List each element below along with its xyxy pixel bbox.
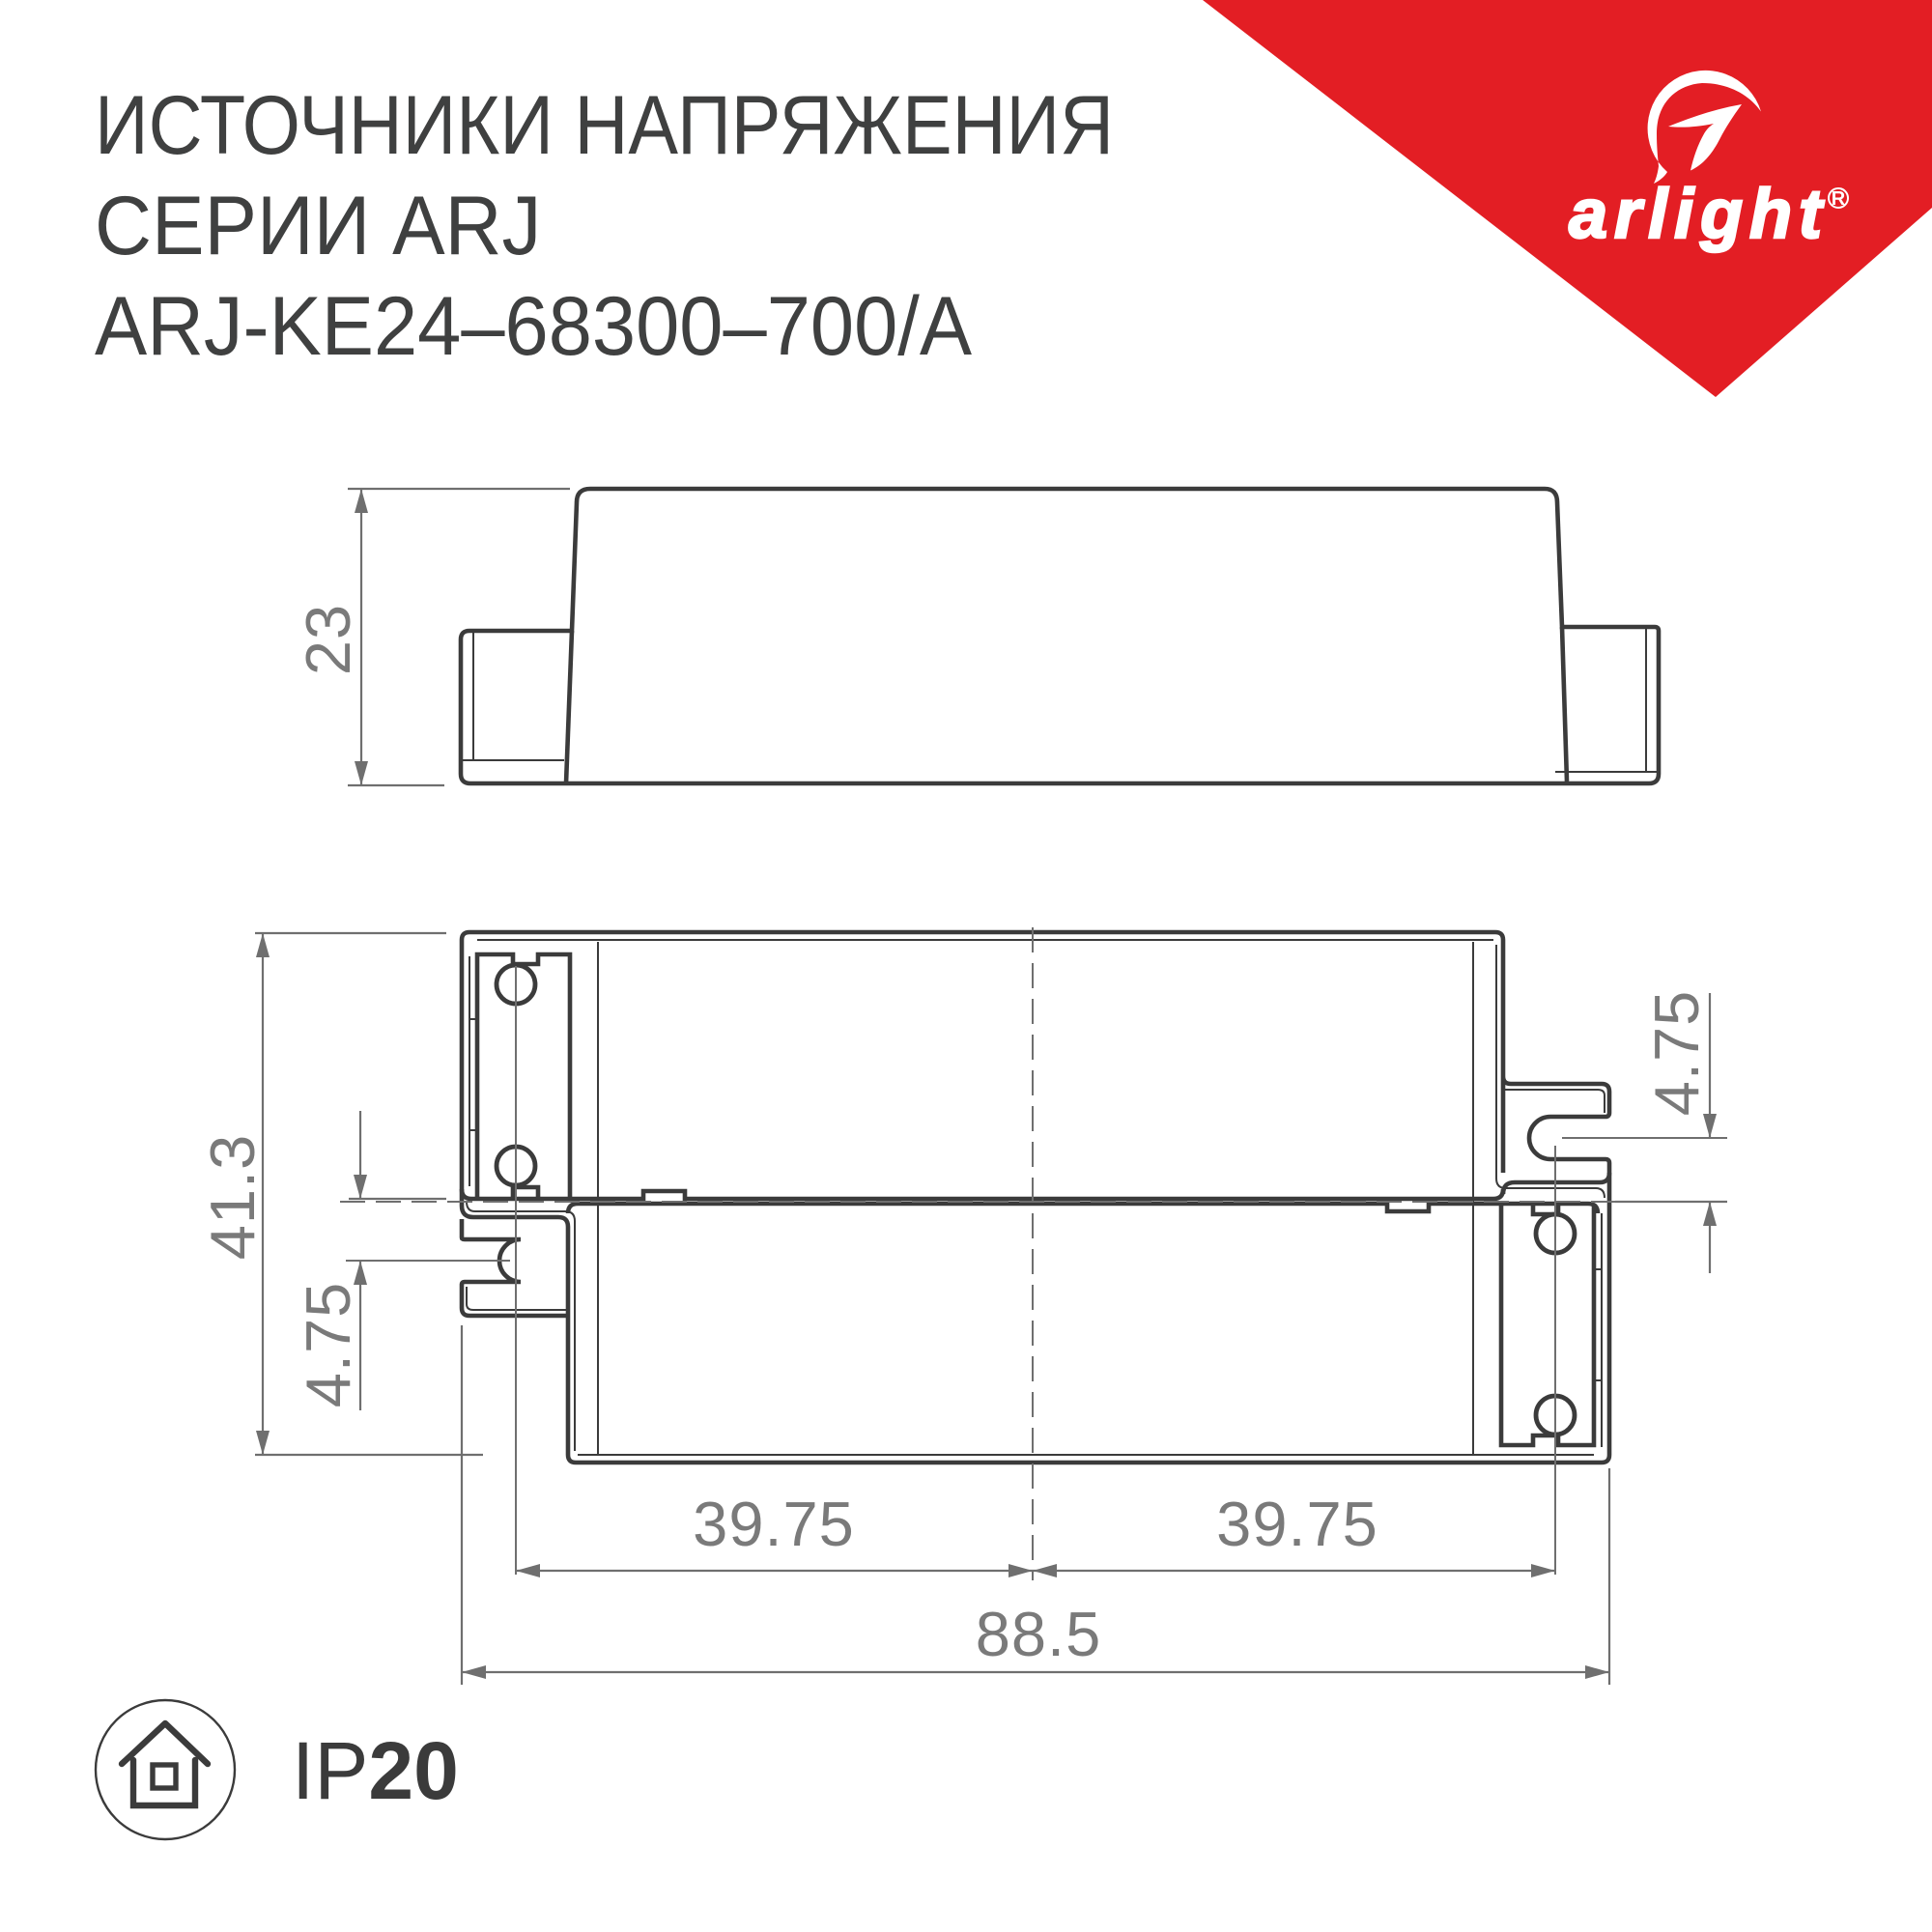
- svg-text:39.75: 39.75: [1216, 1489, 1378, 1559]
- svg-text:39.75: 39.75: [693, 1489, 855, 1559]
- svg-text:R: R: [1832, 188, 1846, 210]
- svg-text:arlight: arlight: [1569, 176, 1829, 253]
- svg-text:41.3: 41.3: [197, 1134, 268, 1261]
- svg-text:ARJ-KE24–68300–700/A: ARJ-KE24–68300–700/A: [95, 279, 972, 373]
- svg-text:4.75: 4.75: [1641, 990, 1712, 1117]
- svg-text:СЕРИИ ARJ: СЕРИИ ARJ: [95, 179, 541, 271]
- svg-text:ИСТОЧНИКИ НАПРЯЖЕНИЯ: ИСТОЧНИКИ НАПРЯЖЕНИЯ: [95, 79, 1114, 172]
- svg-text:4.75: 4.75: [293, 1282, 363, 1408]
- svg-text:23: 23: [293, 604, 363, 675]
- svg-text:88.5: 88.5: [976, 1599, 1102, 1669]
- svg-text:IP20: IP20: [292, 1725, 459, 1816]
